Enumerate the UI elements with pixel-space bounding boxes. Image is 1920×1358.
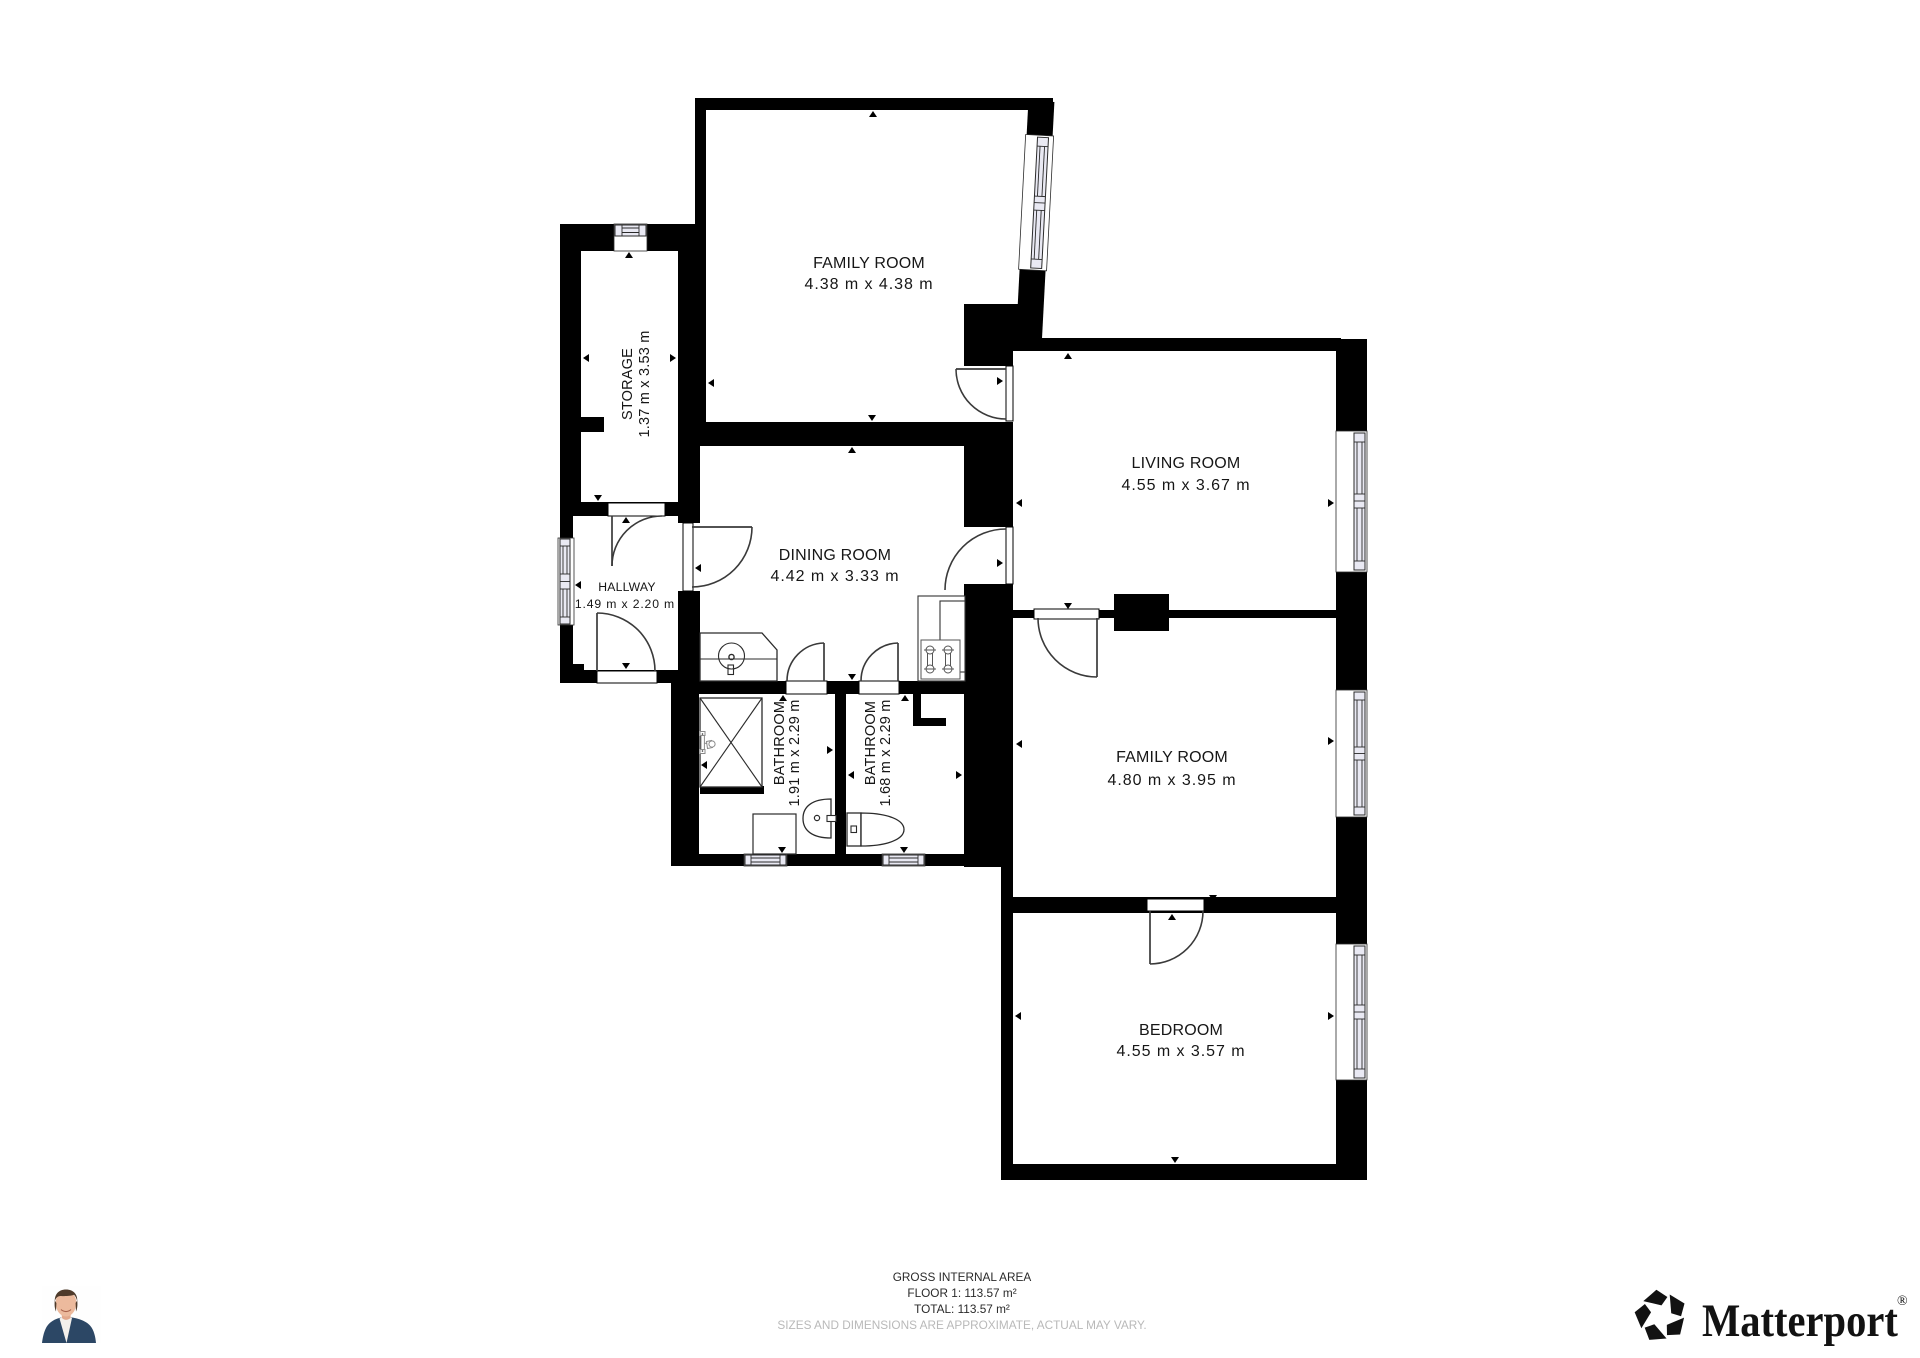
svg-text:1.37 m x 3.53 m: 1.37 m x 3.53 m	[637, 331, 653, 438]
svg-text:®: ®	[1897, 1294, 1908, 1309]
svg-text:1.68 m x 2.29 m: 1.68 m x 2.29 m	[878, 700, 894, 807]
svg-text:HALLWAY: HALLWAY	[598, 580, 655, 594]
svg-text:4.80 m x 3.95 m: 4.80 m x 3.95 m	[1108, 772, 1237, 789]
svg-text:1.91 m x 2.29 m: 1.91 m x 2.29 m	[787, 700, 803, 807]
svg-text:DINING ROOM: DINING ROOM	[779, 547, 891, 564]
svg-text:GROSS INTERNAL AREA: GROSS INTERNAL AREA	[893, 1270, 1032, 1284]
svg-text:STORAGE: STORAGE	[620, 348, 636, 420]
svg-text:1.49 m x 2.20 m: 1.49 m x 2.20 m	[575, 597, 675, 611]
svg-text:FAMILY ROOM: FAMILY ROOM	[813, 255, 925, 272]
svg-text:BATHROOM: BATHROOM	[772, 701, 788, 785]
svg-text:4.42 m x 3.33 m: 4.42 m x 3.33 m	[771, 568, 900, 585]
svg-text:Matterport: Matterport	[1702, 1295, 1898, 1346]
svg-text:TOTAL: 113.57 m²: TOTAL: 113.57 m²	[914, 1302, 1010, 1316]
svg-text:FLOOR 1: 113.57 m²: FLOOR 1: 113.57 m²	[907, 1286, 1016, 1300]
svg-text:FAMILY ROOM: FAMILY ROOM	[1116, 749, 1228, 766]
svg-text:BATHROOM: BATHROOM	[863, 701, 879, 785]
svg-text:SIZES AND DIMENSIONS ARE APPRO: SIZES AND DIMENSIONS ARE APPROXIMATE, AC…	[777, 1318, 1146, 1332]
svg-text:4.38 m x 4.38 m: 4.38 m x 4.38 m	[805, 276, 934, 293]
svg-text:4.55 m x 3.67 m: 4.55 m x 3.67 m	[1122, 477, 1251, 494]
svg-text:4.55 m x 3.57 m: 4.55 m x 3.57 m	[1117, 1043, 1246, 1060]
svg-text:LIVING ROOM: LIVING ROOM	[1132, 455, 1241, 472]
svg-text:BEDROOM: BEDROOM	[1139, 1022, 1223, 1039]
